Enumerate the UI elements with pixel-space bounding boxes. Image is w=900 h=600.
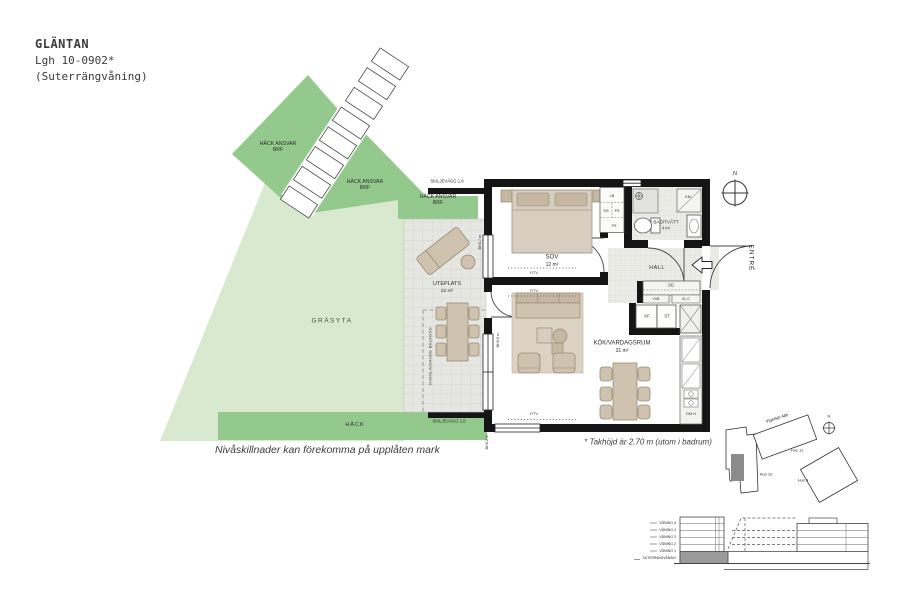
electrical-label: EL.C — [682, 297, 690, 301]
room-sov-name: SOV — [546, 255, 559, 262]
sitemap-hus10-label: Hus 10 — [760, 473, 773, 478]
washer-label: KM — [685, 195, 690, 199]
sitemap-hus9-label: Hus 9 — [798, 479, 808, 484]
hall-kitchen-fixtures — [636, 281, 702, 424]
toilet-bowl — [635, 218, 652, 233]
page-title: GLÄNTAN — [35, 38, 89, 52]
entry-label: ENTRÉ — [747, 244, 754, 271]
closet-lb-label: LB — [610, 194, 615, 198]
patio-area — [404, 219, 486, 412]
sofa-seat — [516, 303, 580, 318]
floorplan-page: GLÄNTAN Lgh 10-0902* (Suterrängvåning) H… — [0, 0, 900, 600]
section-floor-5: VÅNING 5 — [606, 521, 676, 525]
ceiling-note: * Takhöjd är 2,70 m (utom i badrum) — [584, 437, 712, 446]
sitemap-north-icon — [823, 422, 836, 435]
cleaning-closet-label: ST — [664, 315, 669, 320]
room-uteplats-name: UTEPLATS — [433, 281, 461, 287]
pouf — [552, 343, 563, 354]
hedge-bottom-label: HÄCK — [345, 422, 364, 428]
site-building-hus11 — [753, 415, 816, 459]
dining-table — [613, 363, 637, 420]
armchair — [553, 353, 575, 373]
grass-label: GRÄSYTA — [311, 317, 352, 324]
outdoor-table — [447, 303, 468, 361]
sofa-back — [516, 293, 580, 303]
window-height-top: BH0,7 m — [478, 235, 482, 250]
bath-sink — [687, 215, 701, 237]
floorplan-drawing — [0, 0, 900, 600]
room-bad-name: BAD/TVÄTT — [653, 219, 678, 224]
partition-top-label: SKILJEVÄGG 1.8 — [430, 180, 463, 185]
tv-outlet-label: F/TV — [530, 412, 538, 416]
site-building-hus9 — [800, 448, 857, 503]
floor-drain-icon — [636, 193, 643, 200]
bath-door-gap — [648, 240, 684, 248]
room-bad-area: 4 m² — [662, 227, 670, 232]
hedge-label-1: HÄCK ANSVAR BRF — [254, 142, 302, 154]
section-floor-2: VÅNING 2 — [606, 542, 676, 546]
window-height-bottom: BH0,2 m — [485, 435, 489, 450]
section-floor-3: VÅNING 3 — [606, 535, 676, 539]
partition-bottom-label: SKILJEVÄGG 1,8 — [432, 420, 465, 425]
window-height-mid: BH0,6 m — [496, 333, 500, 348]
floor-name: (Suterrängvåning) — [35, 71, 148, 84]
closet-sg-label: SG — [603, 209, 609, 213]
bedroom-furniture — [501, 188, 624, 254]
side-table — [553, 329, 567, 343]
room-hall-name: HALL — [649, 265, 665, 271]
sitemap-north-label: N — [828, 415, 831, 420]
section-floor-4: VÅNING 4 — [606, 528, 676, 532]
hedge-label-3: HÄCK ANSVAR BRF — [414, 195, 462, 207]
hedge-label-2: HÄCK ANSVAR BRF — [341, 180, 389, 192]
pillow — [517, 193, 549, 206]
room-uteplats-area: 22 m² — [441, 289, 453, 295]
tv-outlet-label: F/TV — [530, 271, 538, 275]
north-compass-icon — [722, 180, 749, 207]
patio-side-table — [461, 255, 475, 269]
room-sov-area: 12 m² — [546, 263, 559, 269]
partition-wall-bottom — [428, 412, 484, 418]
balcony-above-label: OVANLIGGANDE BALKONG — [429, 327, 434, 385]
armchair — [518, 353, 540, 373]
section-suterrang-highlight — [680, 552, 728, 564]
apartment-number: Lgh 10-0902* — [35, 55, 114, 68]
closet-fs-label: FS — [612, 224, 617, 228]
coffee-table — [537, 328, 552, 343]
closet-fs-label: FS — [615, 209, 620, 213]
section-floor-1: VÅNING 1 — [606, 549, 676, 553]
room-kok-name: KÖK/VARDAGSRUM — [594, 341, 651, 348]
sitemap-hus11-label: Hus 11 — [791, 449, 803, 454]
sitemap-drawing — [726, 415, 858, 503]
dishwasher-label: DM H — [686, 412, 696, 416]
tv-outlet-label: F/TV — [530, 289, 538, 293]
fridge-label: KF — [644, 315, 649, 320]
nightstand — [501, 190, 512, 202]
room-kok-area: 31 m² — [616, 349, 629, 355]
water-heater-label: VVB — [652, 297, 659, 301]
site-apartment-highlight — [731, 454, 744, 481]
ground-note: Nivåskillnader kan förekomma på upplåten… — [215, 444, 440, 456]
pillow — [555, 193, 587, 206]
shower — [633, 189, 658, 213]
hall-closet-label: SG — [668, 284, 674, 289]
section-basement: SUTERRÄNGVÅNING — [576, 557, 676, 561]
north-label: N — [733, 171, 737, 177]
